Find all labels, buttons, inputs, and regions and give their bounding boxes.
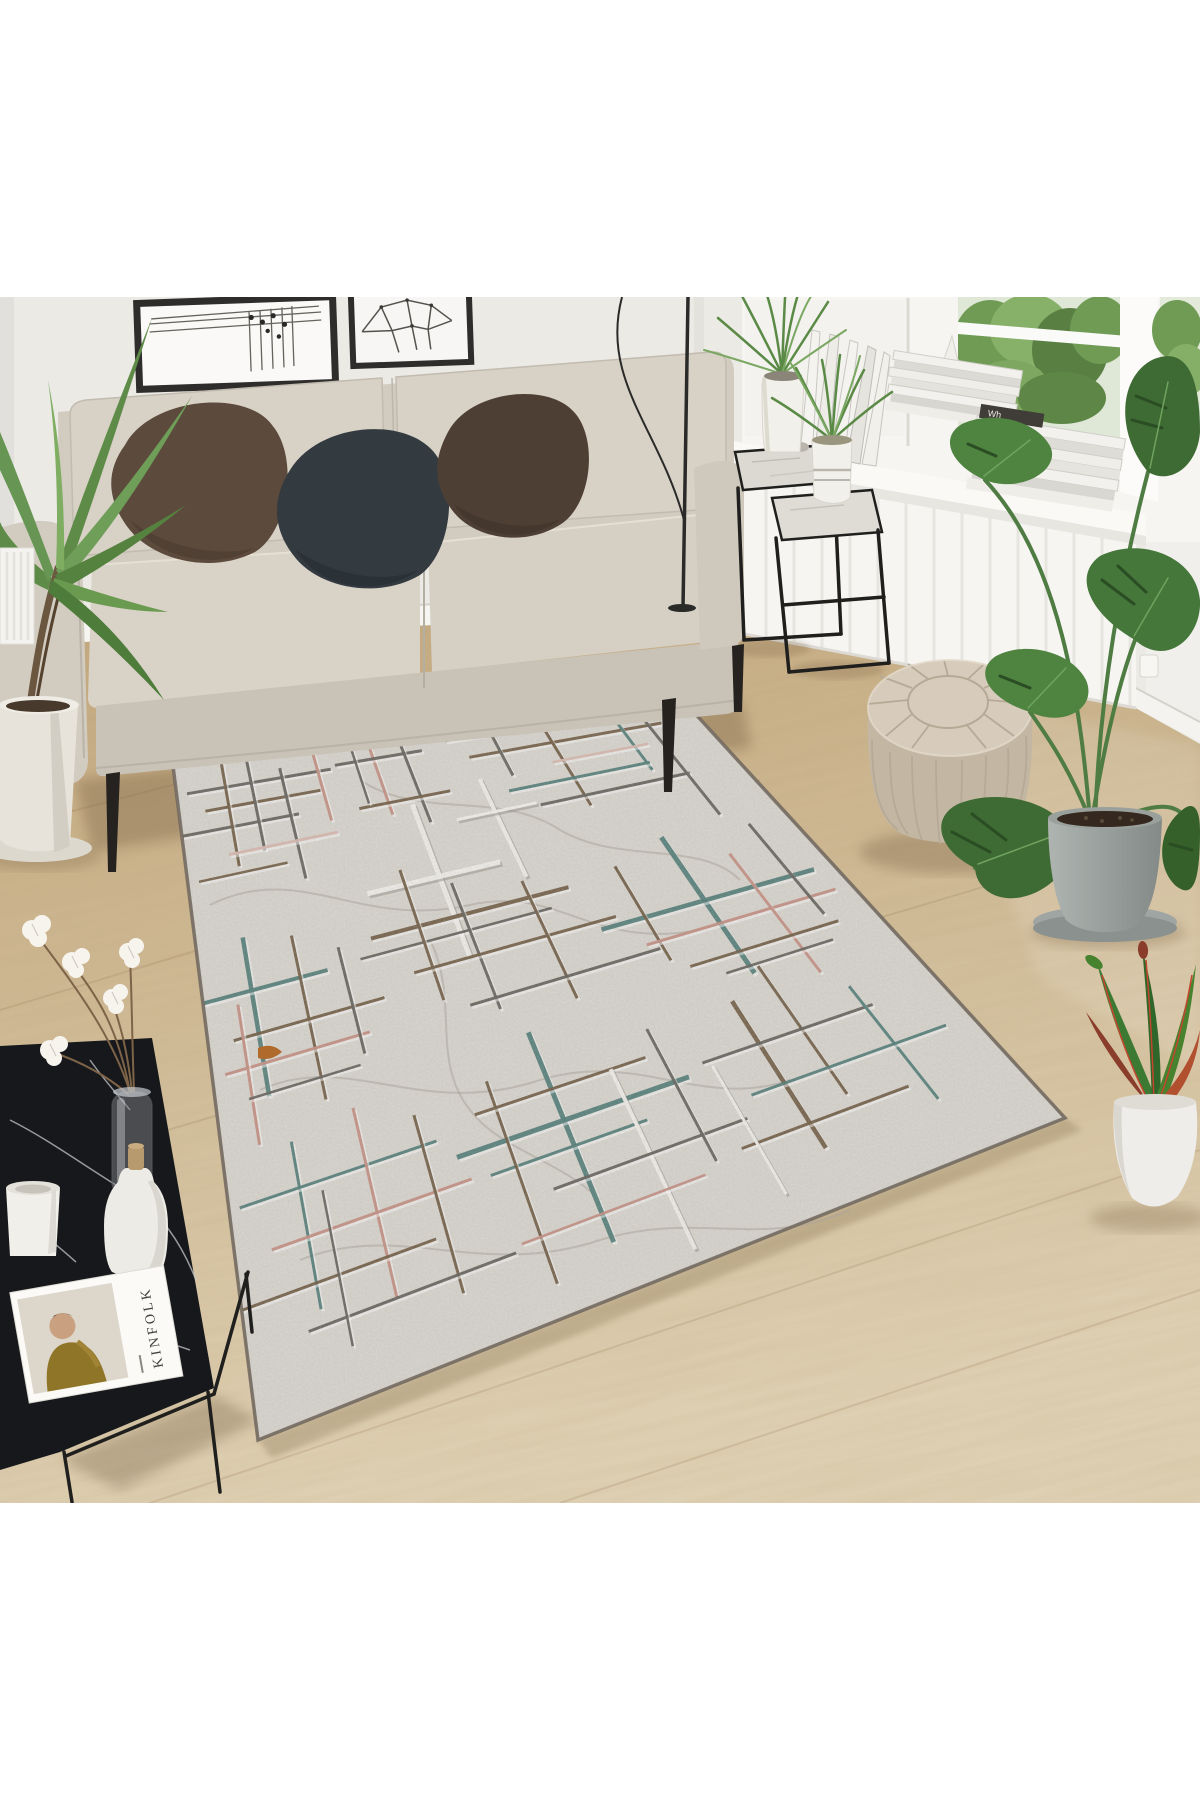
pot-striped — [812, 440, 852, 503]
left-radiator — [0, 548, 34, 644]
top-margin — [0, 0, 1200, 297]
wall-art-frame-web — [351, 290, 471, 366]
monstera-pot — [1033, 807, 1177, 942]
wall-art-frame-lines — [137, 297, 336, 390]
product-photo: Wh — [0, 0, 1200, 1800]
wall-outlet — [1140, 655, 1158, 677]
bottom-margin — [0, 1503, 1200, 1800]
white-jar — [6, 1181, 60, 1256]
